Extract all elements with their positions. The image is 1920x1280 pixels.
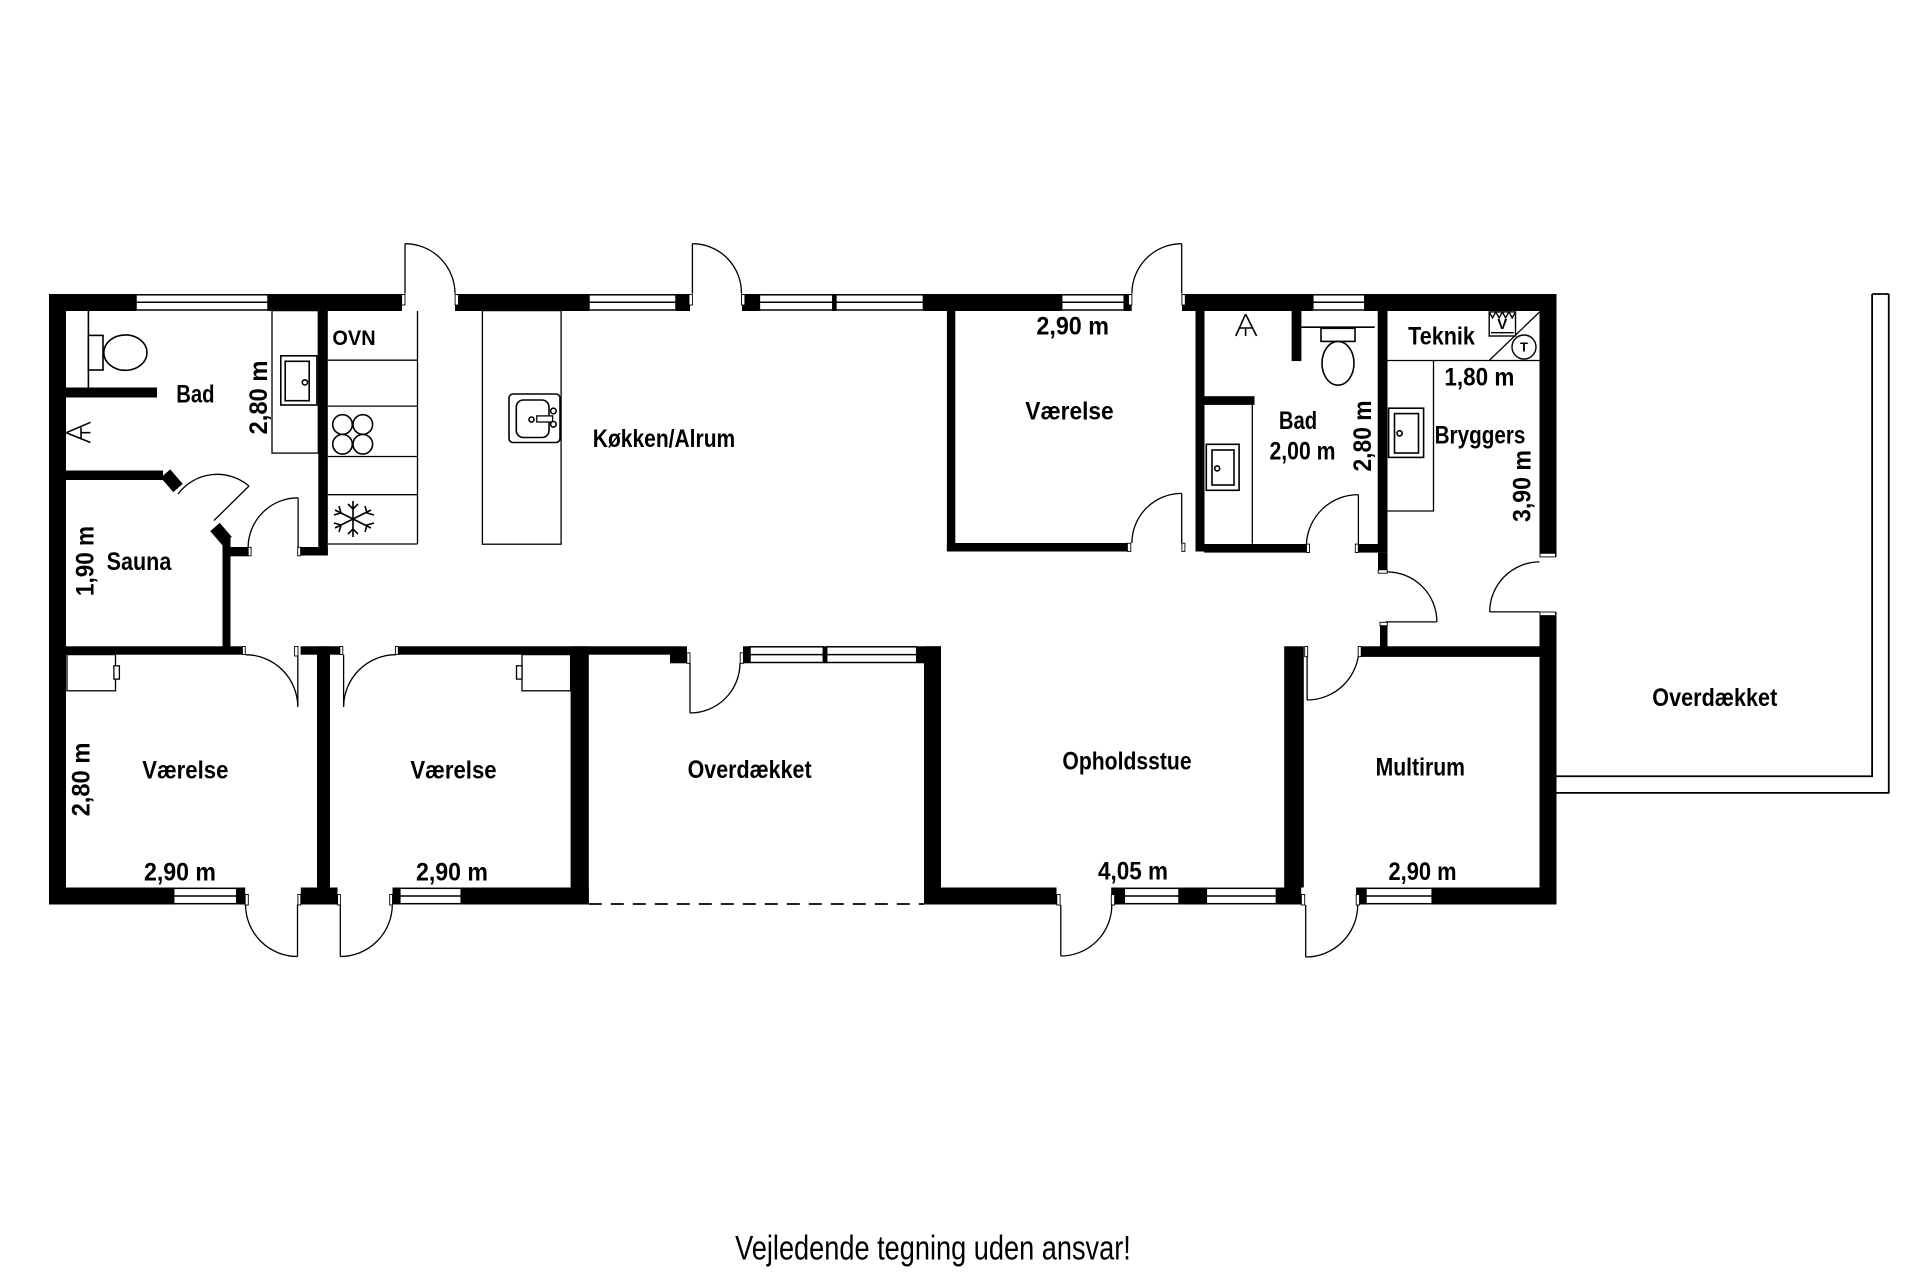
svg-text:2,80 m: 2,80 m — [68, 743, 96, 817]
svg-text:Opholdsstue: Opholdsstue — [1062, 748, 1191, 776]
svg-text:Teknik: Teknik — [1408, 323, 1475, 351]
svg-text:Bryggers: Bryggers — [1435, 421, 1526, 449]
svg-text:2,90 m: 2,90 m — [1389, 858, 1457, 886]
svg-text:1,80 m: 1,80 m — [1444, 363, 1514, 391]
svg-text:4,05 m: 4,05 m — [1098, 858, 1168, 886]
svg-text:Bad: Bad — [1279, 407, 1317, 435]
svg-text:OVN: OVN — [332, 327, 375, 350]
svg-text:2,90 m: 2,90 m — [416, 859, 488, 887]
svg-text:Køkken/Alrum: Køkken/Alrum — [593, 425, 735, 453]
svg-text:Bad: Bad — [176, 381, 214, 409]
svg-text:T: T — [1520, 340, 1528, 355]
svg-text:Multirum: Multirum — [1376, 754, 1465, 782]
svg-text:Overdækket: Overdækket — [688, 756, 813, 784]
svg-text:2,00 m: 2,00 m — [1270, 438, 1336, 466]
svg-text:3,90 m: 3,90 m — [1509, 450, 1537, 522]
svg-text:1,90 m: 1,90 m — [72, 526, 100, 596]
svg-text:V: V — [1497, 316, 1507, 333]
svg-text:Værelse: Værelse — [1025, 397, 1113, 425]
svg-text:Overdækket: Overdækket — [1652, 684, 1778, 712]
svg-text:Sauna: Sauna — [107, 548, 173, 576]
svg-text:2,90 m: 2,90 m — [144, 859, 216, 887]
svg-text:2,80 m: 2,80 m — [1349, 401, 1377, 472]
svg-text:2,90 m: 2,90 m — [1036, 313, 1109, 341]
svg-text:Værelse: Værelse — [410, 756, 496, 784]
svg-text:Værelse: Værelse — [142, 756, 228, 784]
svg-text:2,80 m: 2,80 m — [245, 361, 273, 435]
svg-text:Vejledende tegning uden ansvar: Vejledende tegning uden ansvar! — [735, 1230, 1131, 1268]
